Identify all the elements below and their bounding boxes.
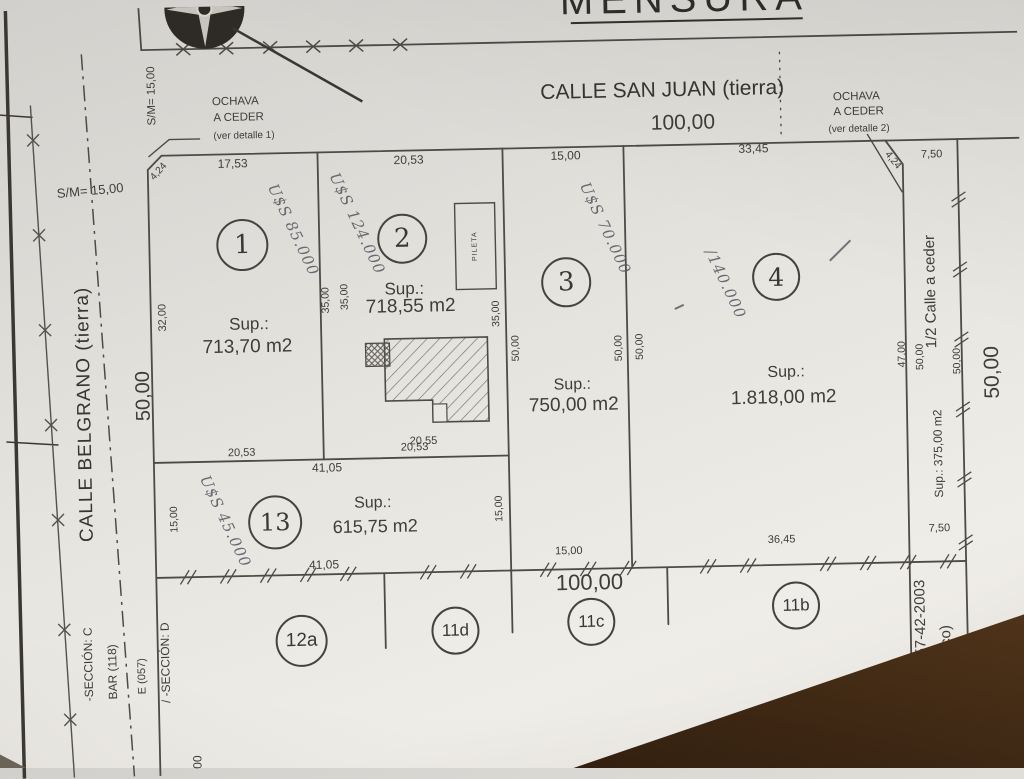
dim-p4-bottom: 36,45 <box>768 533 796 546</box>
parcel-13-area: 615,75 m2 <box>333 515 418 537</box>
dim-strip-bottom: 7,50 <box>929 522 951 535</box>
dim-p1-top: 17,53 <box>218 157 248 171</box>
dim-p4-top: 33,45 <box>738 142 768 156</box>
fence-line <box>26 105 77 779</box>
parcel-1-sup-label: Sup.: <box>229 314 269 334</box>
dim-p13-above-a: 20,53 <box>228 447 256 460</box>
dim-p1p2-b: 35,00 <box>339 284 351 311</box>
dim-p2-top: 20,53 <box>393 154 423 168</box>
margin-seccion-c: -SECCIÓN: C <box>82 627 97 701</box>
dim-san-juan-width: 100,00 <box>651 110 716 135</box>
dim-strip-left: 47,00 <box>897 341 909 368</box>
survey-plan-sheet: MENSURA CALLE SAN JUAN (tierra) 100,00 C… <box>0 0 1024 779</box>
dim-p3-east-a: 50,00 <box>613 335 625 362</box>
dim-p13-right: 15,00 <box>494 495 506 522</box>
building-footprint <box>365 337 489 424</box>
dim-p3-west-b: 50,00 <box>510 335 522 362</box>
parcel-3-sup-label: Sup.: <box>553 376 591 395</box>
dim-p3-bottom: 15,00 <box>555 545 583 558</box>
dim-p1p2-a: 35,00 <box>320 287 332 314</box>
dim-sm-top: S/M= 15,00 <box>145 66 159 125</box>
page-edge-line <box>0 10 65 779</box>
parcel-4-area: 1.818,00 m2 <box>731 386 837 409</box>
ochava-right-l2: A CEDER <box>833 105 884 119</box>
ochava-left-l3: (ver detalle 1) <box>213 130 274 142</box>
parcel-4-sup-label: Sup.: <box>767 363 805 382</box>
ochava-left-l1: OCHAVA <box>212 95 259 109</box>
half-street-sup: Sup.: 375,00 m2 <box>931 409 946 497</box>
parcel-2-area: 718,55 m2 <box>366 295 456 318</box>
dim-strip-top: 7,50 <box>921 148 943 161</box>
ochava-right-l3: (ver detalle 2) <box>828 123 889 135</box>
margin-e-057: E (057) <box>136 658 149 694</box>
dim-belgrano-width: 50,00 <box>132 371 155 422</box>
margin-bar-118: BAR (118) <box>106 644 121 699</box>
dim-bottom-total: 100,00 <box>556 570 624 596</box>
margin-seccion-d: / -SECCIÓN: D <box>159 622 174 703</box>
dim-p13-left: 15,00 <box>169 506 181 533</box>
dim-p13-top: 41,05 <box>312 461 342 475</box>
dim-strip-mid: 50,00 <box>915 344 927 371</box>
dim-p13-above-b: 20,53 <box>401 441 429 454</box>
dim-p13-bottom: 41,05 <box>309 558 339 572</box>
parcel-13-sup-label: Sup.: <box>354 494 392 513</box>
parcel-3-area: 750,00 m2 <box>529 394 619 417</box>
pool-label: PILETA <box>471 231 479 261</box>
dim-strip-right: 50,00 <box>952 348 964 375</box>
dim-p1-left: 32,00 <box>156 304 169 332</box>
parcel-1-area: 713,70 m2 <box>202 335 292 358</box>
dim-p3-top: 15,00 <box>550 149 580 163</box>
dim-p3-east-b: 50,00 <box>634 333 646 360</box>
ochava-right-l1: OCHAVA <box>833 90 880 104</box>
ochava-left-l2: A CEDER <box>213 111 264 125</box>
dim-p3-west-a: 35,00 <box>491 300 503 327</box>
compass-rose-icon <box>164 0 363 106</box>
dim-strip-outer: 50,00 <box>980 346 1005 399</box>
half-street-label: 1/2 Calle a ceder <box>922 235 941 349</box>
margin-partial-number: 00 <box>191 755 205 769</box>
